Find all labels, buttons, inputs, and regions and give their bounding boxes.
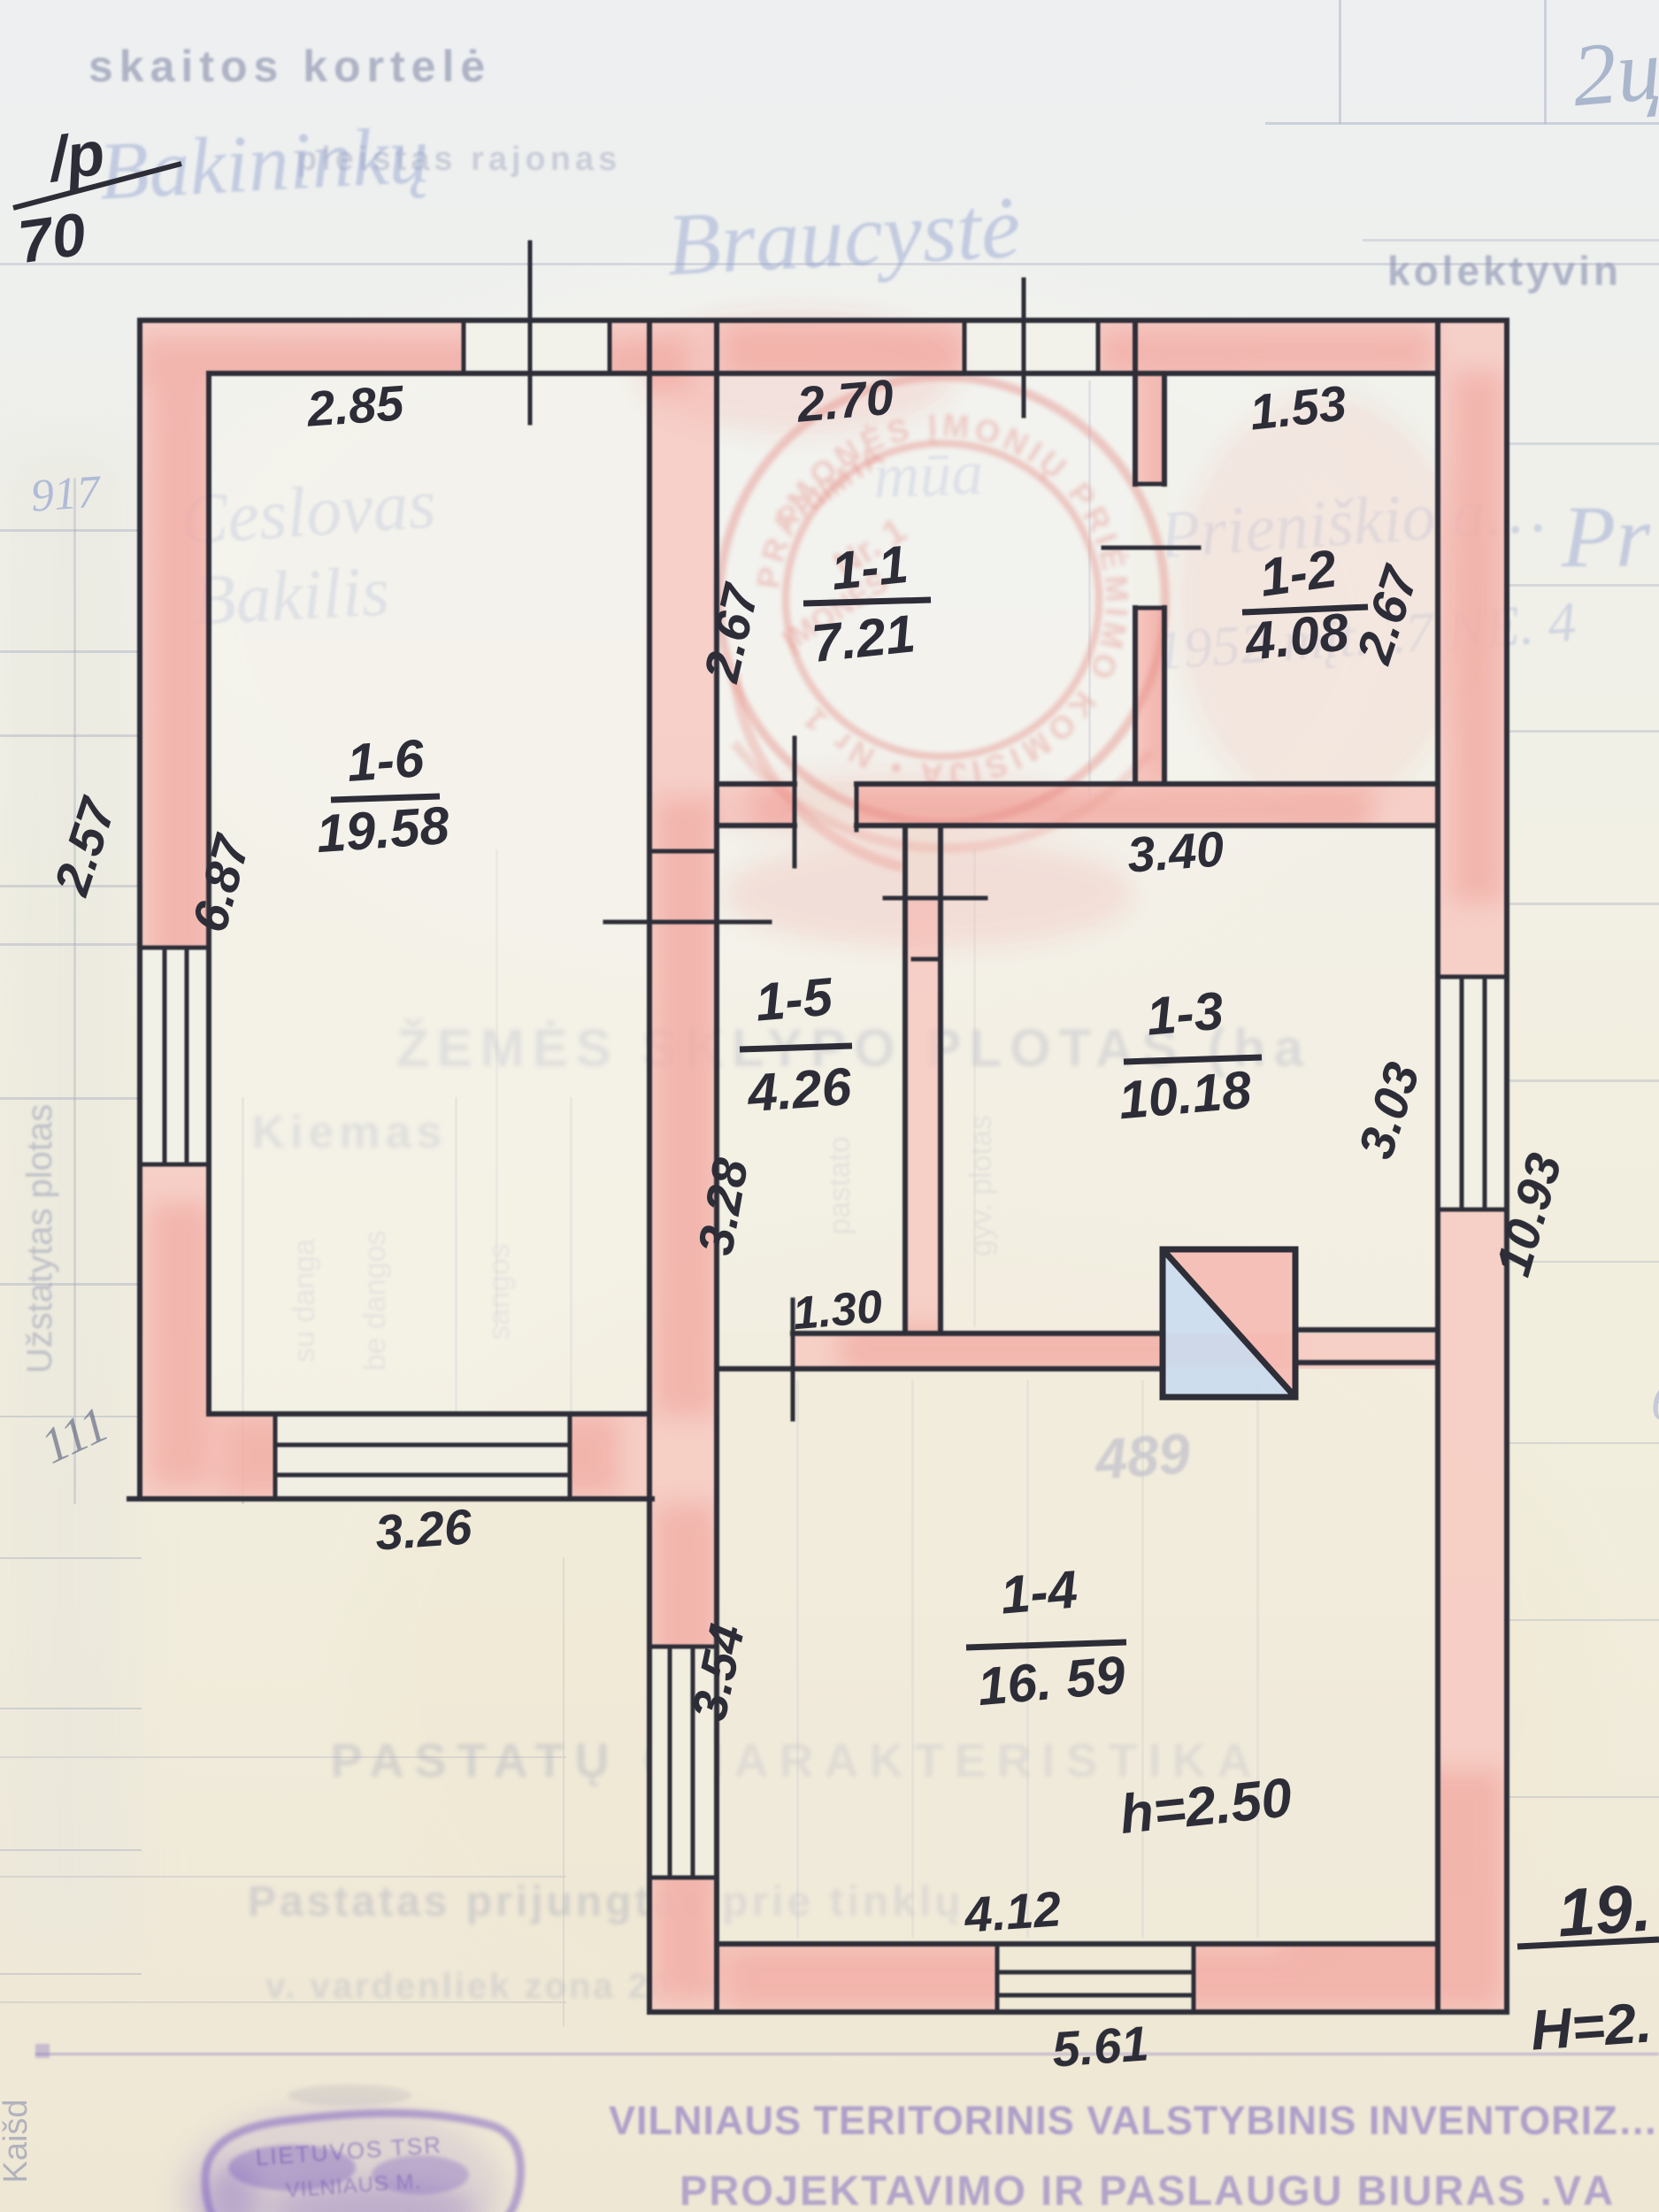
- svg-text:1-5: 1-5: [753, 966, 836, 1032]
- svg-text:3.40: 3.40: [1125, 820, 1225, 882]
- svg-text:1.30: 1.30: [791, 1281, 885, 1340]
- svg-text:917: 917: [29, 466, 104, 521]
- svg-text:70: 70: [14, 200, 90, 276]
- svg-text:2.85: 2.85: [304, 374, 406, 437]
- svg-text:H=2.: H=2.: [1529, 1990, 1655, 2062]
- svg-text:VILNIAUS TERITORINIS VALSTYB: VILNIAUS TERITORINIS VALSTYBINIS INVENTO…: [609, 2098, 1659, 2143]
- svg-text:1-4: 1-4: [998, 1559, 1079, 1624]
- svg-text:Bakininkų: Bakininkų: [96, 109, 431, 216]
- svg-text:1-6: 1-6: [345, 728, 426, 793]
- svg-text:kolektyvin: kolektyvin: [1387, 248, 1622, 294]
- svg-text:10.18: 10.18: [1117, 1060, 1255, 1131]
- svg-text:Pr: Pr: [1561, 488, 1651, 586]
- svg-text:2.70: 2.70: [794, 368, 895, 432]
- svg-text:4.26: 4.26: [745, 1056, 854, 1123]
- svg-text:skaitos kortelė: skaitos kortelė: [88, 42, 491, 91]
- svg-text:1-3: 1-3: [1144, 980, 1225, 1046]
- svg-text:3.26: 3.26: [373, 1498, 474, 1561]
- svg-text:6: 6: [1651, 1373, 1659, 1432]
- svg-text:7.21: 7.21: [809, 603, 918, 673]
- svg-text:Braucystė: Braucystė: [664, 178, 1023, 295]
- svg-text:PROJEKTAVIMO IR PASLAUGU BI: PROJEKTAVIMO IR PASLAUGU BIURAS .VА: [680, 2167, 1615, 2212]
- svg-text:5.61: 5.61: [1050, 2015, 1150, 2077]
- svg-text:1-2: 1-2: [1256, 538, 1340, 607]
- svg-text:1-1: 1-1: [828, 534, 910, 602]
- svg-text:19.58: 19.58: [314, 795, 451, 864]
- svg-text:4.12: 4.12: [962, 1880, 1063, 1943]
- svg-text:1.53: 1.53: [1247, 375, 1348, 441]
- svg-text:2ц: 2ц: [1568, 19, 1659, 125]
- svg-text:Užstatytas plotas: Užstatytas plotas: [20, 1104, 59, 1374]
- svg-text:Kaišd: Kaišd: [0, 2099, 35, 2183]
- svg-text:4.08: 4.08: [1241, 602, 1352, 672]
